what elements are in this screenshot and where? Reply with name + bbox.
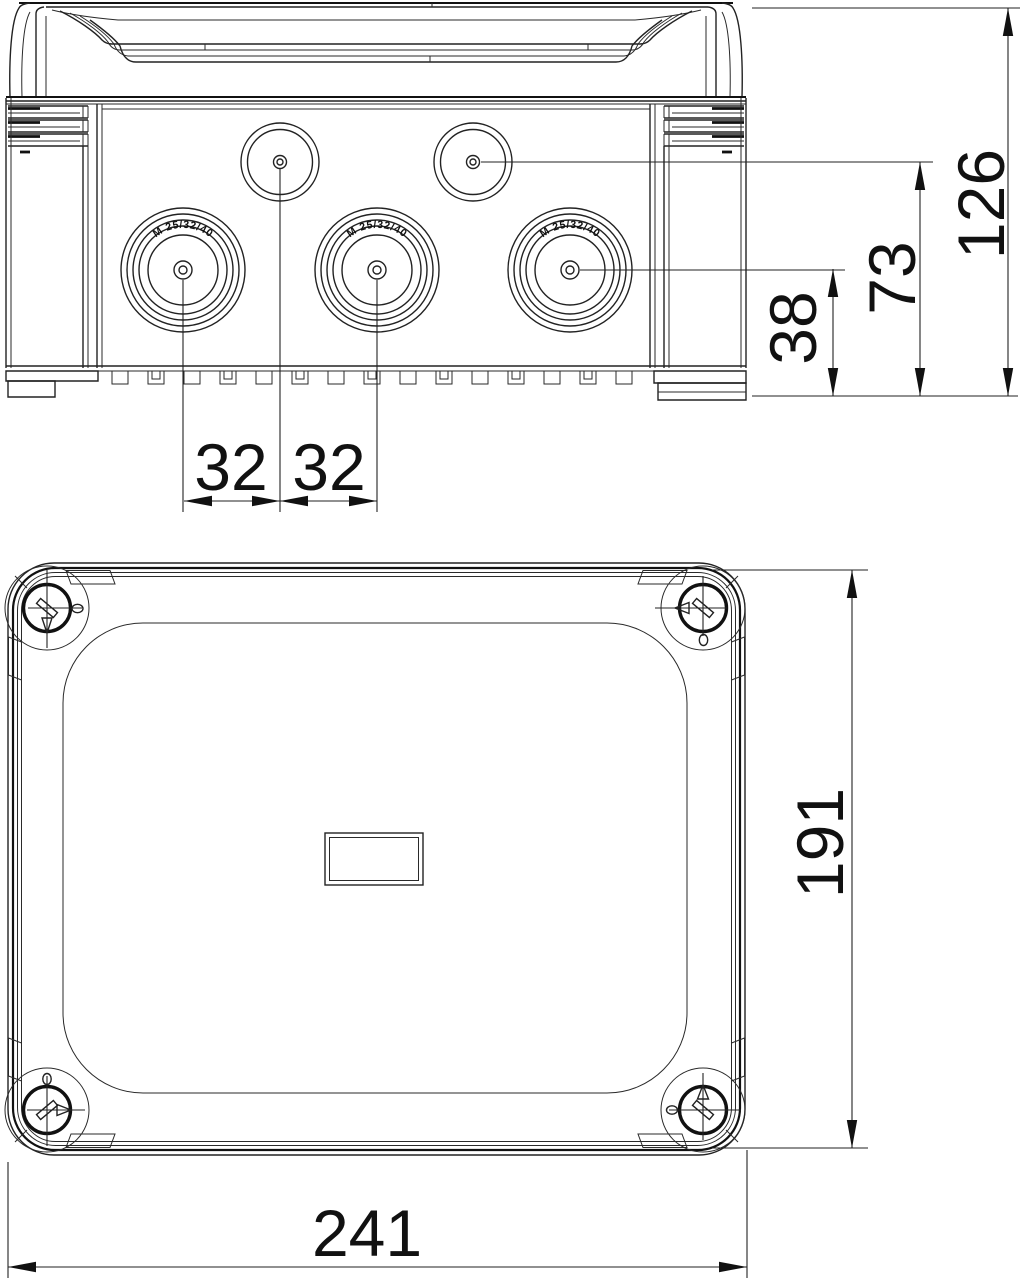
dim-overall-width: 241 [312, 1196, 422, 1270]
lid-rim-band [6, 97, 746, 109]
corner-latch-tabs [9, 571, 745, 1148]
body-bottom-edge [6, 366, 746, 371]
left-foot [6, 371, 98, 397]
svg-text:M 25/32/40: M 25/32/40 [538, 219, 603, 240]
mounting-tab-row [112, 371, 632, 384]
arrowhead [1003, 8, 1013, 36]
knockout-size-label: M 25/32/40 [345, 219, 410, 240]
lid-rim-outlines [8, 563, 745, 1155]
arrowhead [719, 1262, 747, 1272]
lid-side-profile [10, 3, 742, 97]
dim-small-knockout-height: 73 [855, 241, 929, 314]
knockout-size-label: M 25/32/40 [151, 219, 216, 240]
knockout-size-label: M 25/32/40 [538, 219, 603, 240]
dim-knockout-spacing-right: 32 [292, 430, 365, 504]
dim-knockout-spacing-left: 32 [194, 430, 267, 504]
arrowhead [847, 1120, 857, 1148]
dim-overall-height: 126 [944, 149, 1018, 259]
arrowhead [847, 570, 857, 598]
seal-eyelet [699, 635, 707, 646]
right-latch-tower [650, 98, 746, 368]
arrowhead [828, 368, 838, 396]
label-plate [325, 833, 423, 885]
side-dimensions: 32 32 38 73 126 [184, 8, 1018, 506]
arrowhead [8, 1262, 36, 1272]
left-latch-tower [6, 98, 102, 368]
right-foot [654, 371, 746, 400]
corner-screw-bottom-right [661, 1068, 745, 1152]
svg-text:M 25/32/40: M 25/32/40 [345, 219, 410, 240]
drawing-page: M 25/32/40 M 25/32/40 M 25/32/40 32 32 [0, 0, 1024, 1281]
svg-text:M 25/32/40: M 25/32/40 [151, 219, 216, 240]
arrowhead [915, 368, 925, 396]
arrowhead [915, 162, 925, 190]
technical-drawing-canvas: M 25/32/40 M 25/32/40 M 25/32/40 32 32 [0, 0, 1024, 1281]
arrowhead [1003, 368, 1013, 396]
plan-view [5, 563, 745, 1155]
lid-recessed-panel [63, 623, 687, 1093]
dim-overall-depth: 191 [783, 788, 857, 898]
dim-large-knockout-height: 38 [756, 291, 830, 364]
